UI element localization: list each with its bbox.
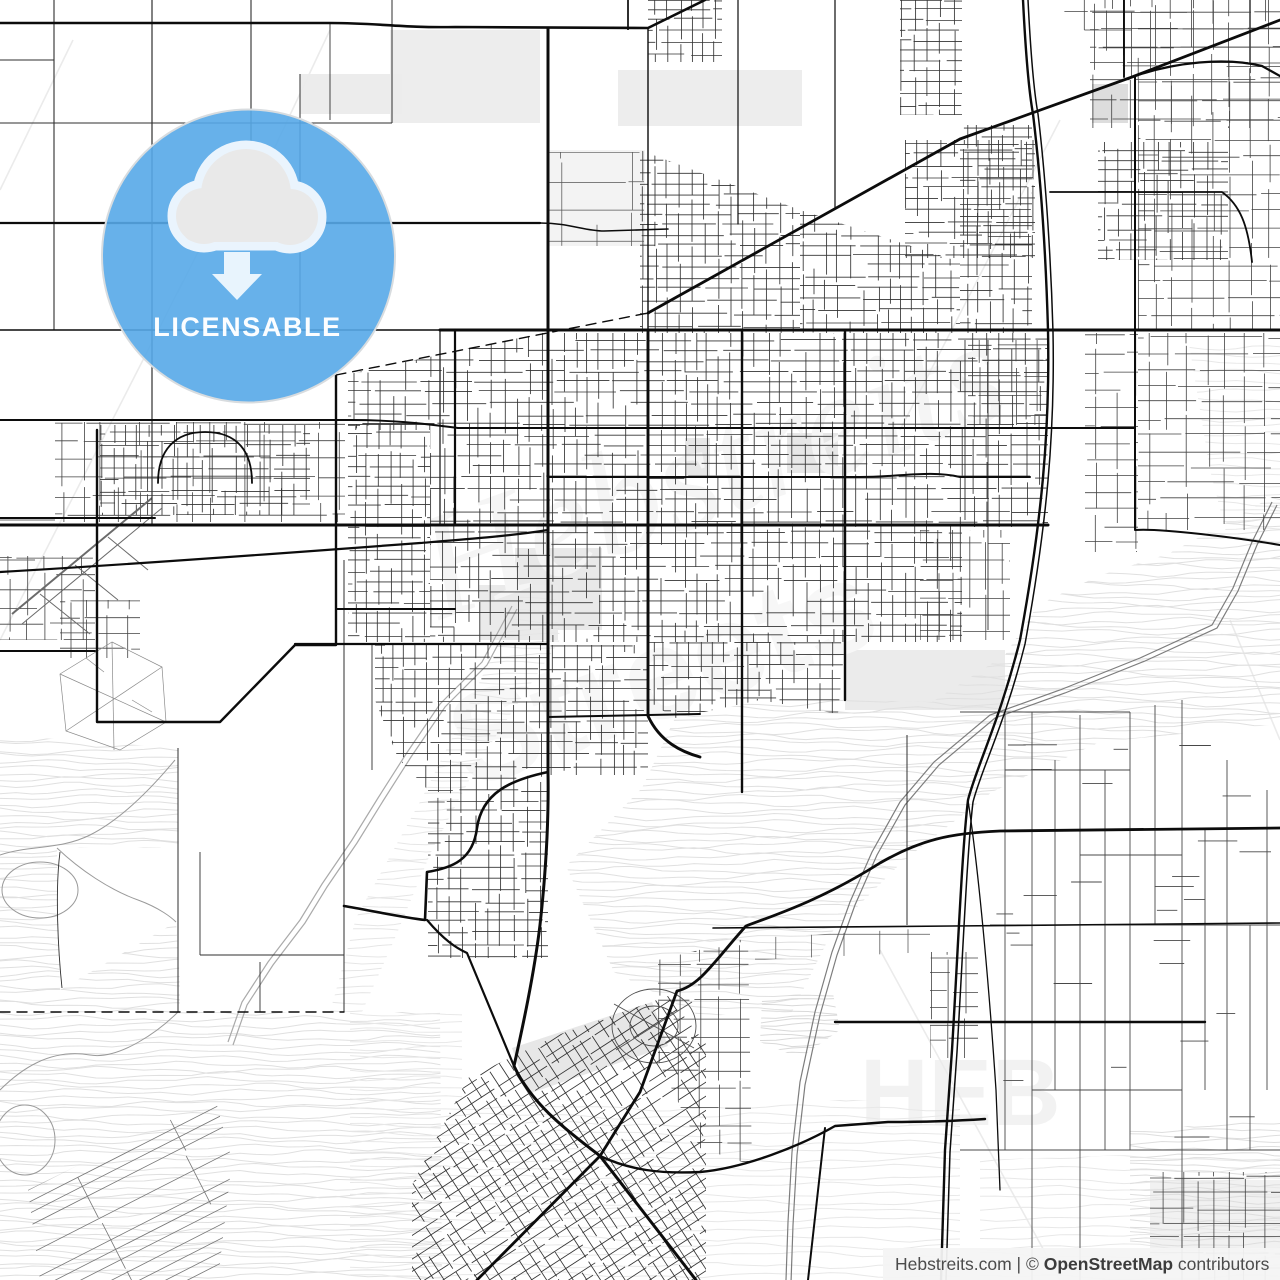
svg-text:HEB: HEB (860, 1040, 1061, 1146)
svg-text:LICENSABLE: LICENSABLE (153, 312, 342, 342)
svg-text:Hebstreits.com | © OpenStreetM: Hebstreits.com | © OpenStreetMap contrib… (895, 1254, 1270, 1274)
